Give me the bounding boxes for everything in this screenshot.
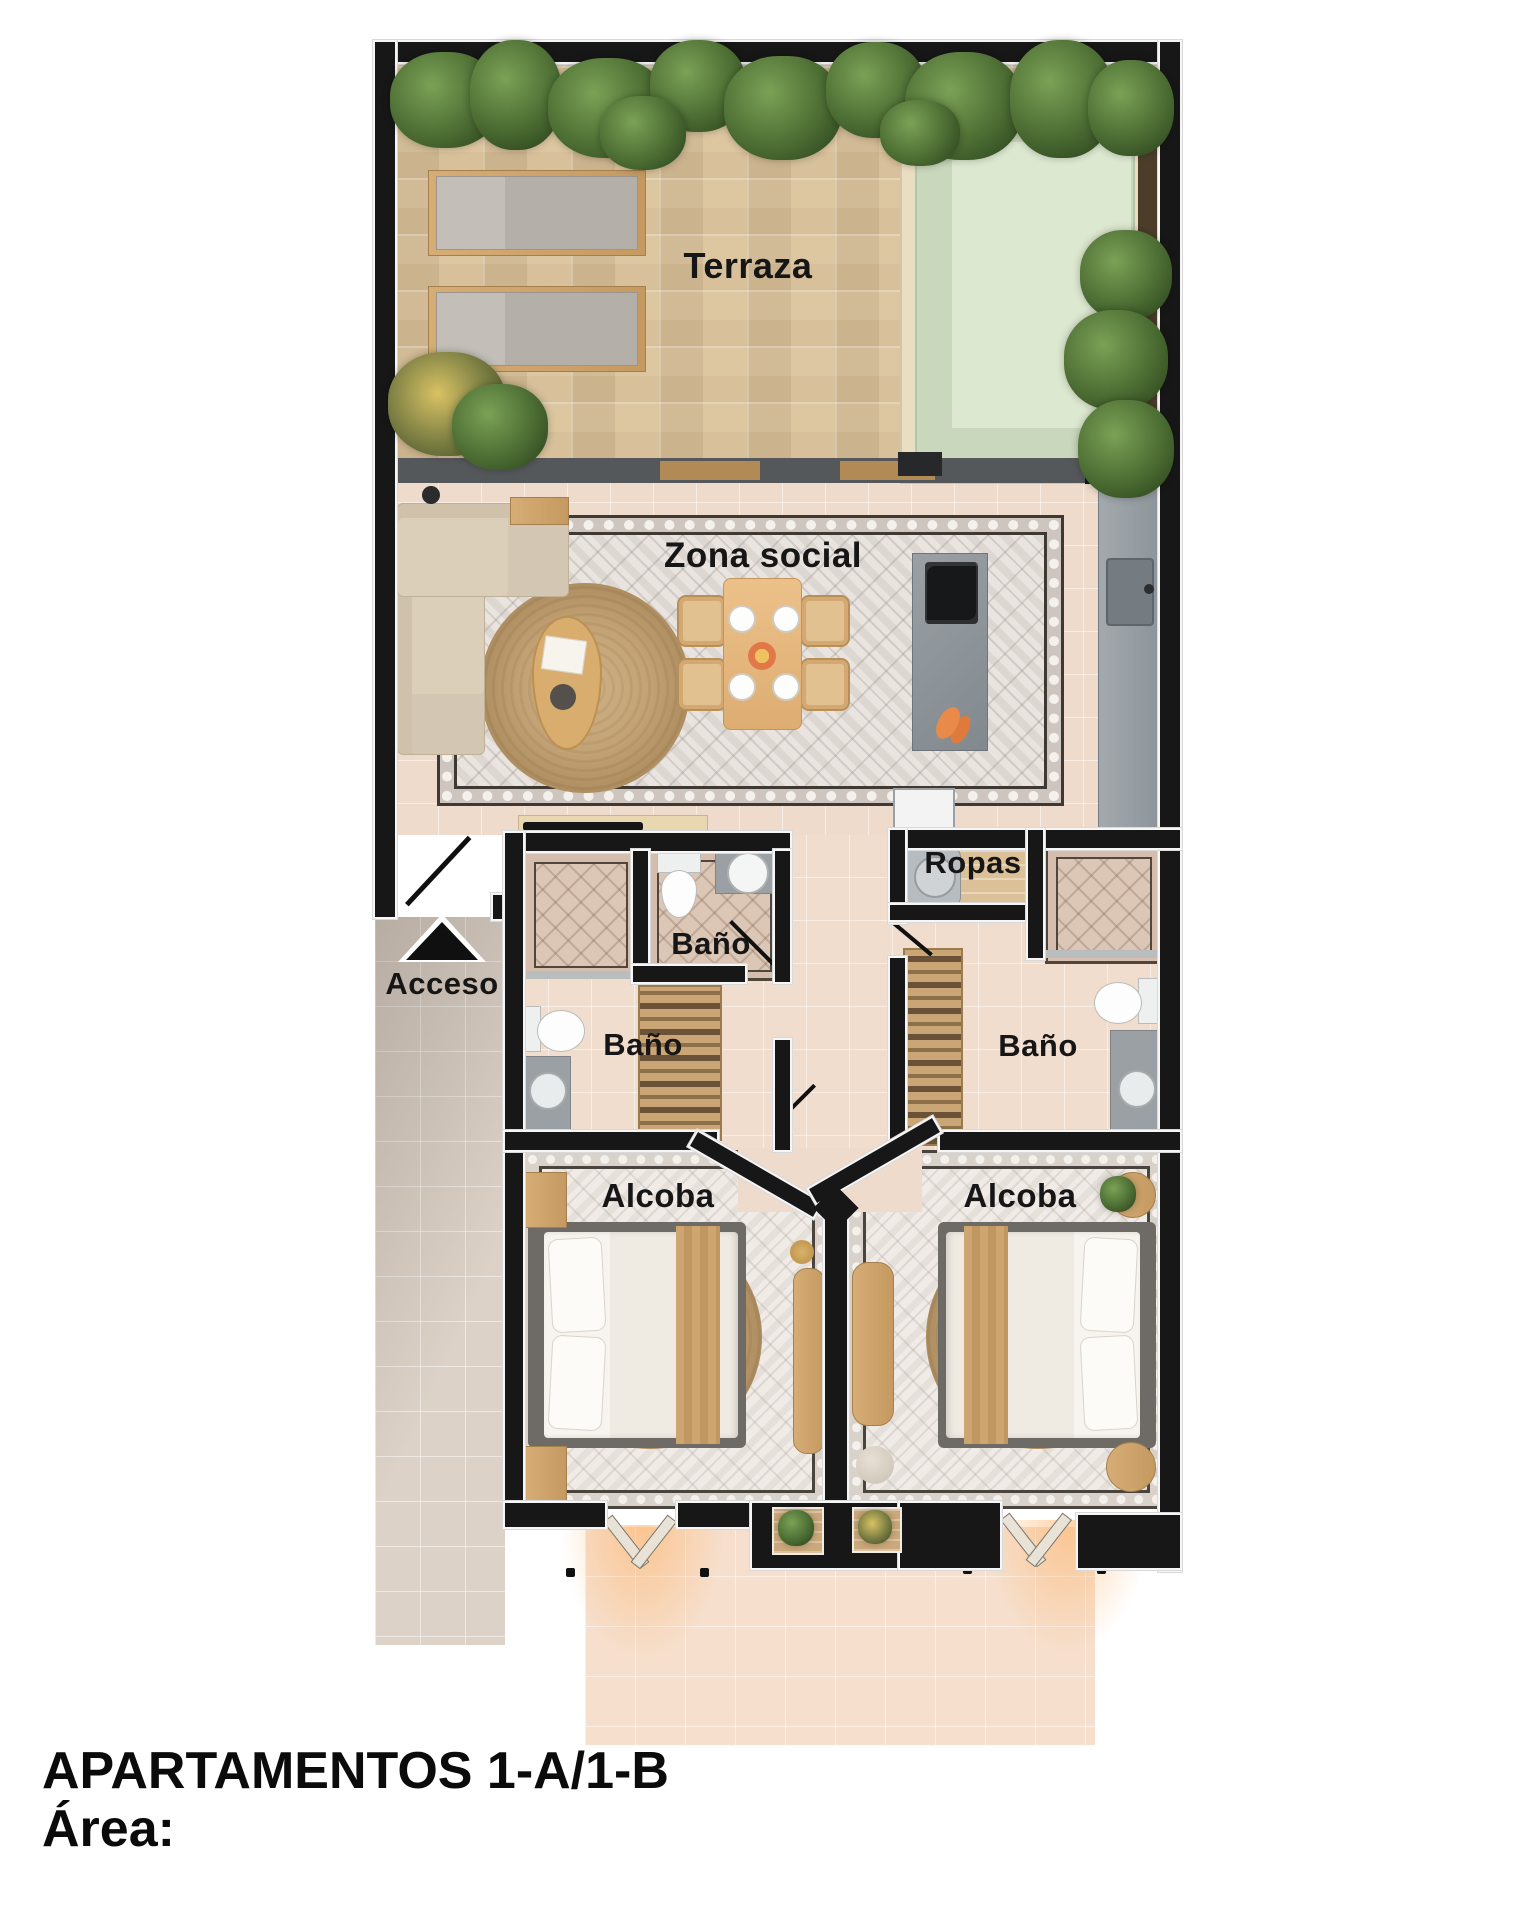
plant-icon	[1080, 230, 1172, 320]
bed-pillow	[1080, 1335, 1139, 1432]
potted-plant-icon	[1100, 1176, 1136, 1212]
wall-alcoba2-top	[940, 1132, 1180, 1150]
room-label-bano-social: Baño	[671, 926, 751, 962]
sink	[1118, 1070, 1156, 1108]
sofa-side-table	[510, 497, 569, 525]
closet-left-bath	[638, 985, 722, 1141]
wall-bottom-d	[900, 1503, 1000, 1568]
room-label-zona-social: Zona social	[664, 536, 862, 576]
sink	[529, 1072, 567, 1110]
bed-throw	[676, 1226, 720, 1444]
powder-sink	[727, 852, 769, 894]
floor-lamp-icon	[422, 486, 440, 504]
plan-title: APARTAMENTOS 1-A/1-B	[42, 1742, 669, 1800]
wall-central-divider	[825, 1205, 847, 1515]
door-handle-icon	[700, 1568, 709, 1577]
floor-plan-page: Terraza Zona social Acceso Baño Baño Bañ…	[0, 0, 1536, 1920]
plate	[728, 605, 756, 633]
shower-glass-right	[1045, 950, 1157, 958]
wall-shower-powder-divider	[633, 851, 648, 981]
wall-hall-left	[775, 1040, 790, 1150]
shower-room-right	[1045, 846, 1163, 964]
appliance	[893, 788, 955, 834]
room-label-bano-2: Baño	[998, 1028, 1078, 1064]
pouf	[856, 1446, 894, 1484]
niche-plant-icon	[858, 1510, 892, 1544]
plant-icon	[724, 56, 842, 160]
wall-powder-bottom	[633, 966, 745, 982]
room-label-terraza: Terraza	[684, 245, 813, 287]
wall-bath-outer-left	[505, 833, 523, 1525]
wall-alcoba1-top	[505, 1132, 717, 1150]
closet-right-bath	[903, 948, 963, 1146]
dining-chair	[800, 658, 850, 711]
plant-icon	[1064, 310, 1168, 410]
console-table	[793, 1268, 825, 1454]
plate	[772, 605, 800, 633]
console-table	[852, 1262, 894, 1426]
toilet-bowl	[537, 1010, 585, 1052]
wall-left	[375, 42, 395, 917]
wall-ropas-right	[1028, 830, 1043, 958]
toilet-bowl	[1094, 982, 1142, 1024]
room-label-alcoba-2: Alcoba	[963, 1177, 1076, 1215]
acceso-arrow-icon	[398, 914, 486, 962]
wall-bottom-a	[505, 1503, 605, 1527]
bed-throw	[964, 1226, 1008, 1444]
cooktop	[925, 562, 978, 624]
fruit-bowl	[748, 642, 776, 670]
bed-pillow	[548, 1237, 607, 1334]
wall-powder-right	[775, 851, 790, 982]
nightstand-round	[1106, 1442, 1156, 1492]
sink-faucet-icon	[1144, 584, 1154, 594]
plan-area-label: Área:	[42, 1800, 669, 1858]
tv-icon	[523, 822, 643, 831]
wall-hall-right	[890, 958, 905, 1150]
nightstand	[525, 1446, 567, 1502]
plant-icon	[1078, 400, 1174, 498]
lounger-cushion-1	[436, 176, 638, 250]
door-handle-icon	[566, 1568, 575, 1577]
wall-bath-top-left	[505, 833, 790, 851]
terrace-door-wood-1	[660, 461, 760, 480]
plate	[772, 673, 800, 701]
room-label-alcoba-1: Alcoba	[601, 1177, 714, 1215]
wall-ropas-bottom	[890, 905, 1042, 920]
door-leaf-line	[405, 836, 471, 907]
coffee-table-bowl	[550, 684, 576, 710]
dining-chair	[677, 658, 727, 711]
shower-glass-left	[523, 971, 633, 979]
plate	[728, 673, 756, 701]
plant-icon	[600, 96, 686, 170]
wall-bottom-e	[1078, 1515, 1180, 1568]
bed-pillow	[548, 1335, 607, 1432]
wall-bottom-b	[678, 1503, 754, 1527]
room-label-acceso: Acceso	[385, 966, 498, 1002]
kitchen-counter	[1098, 483, 1162, 835]
coffee-table-book	[541, 635, 587, 675]
corridor-shadow	[375, 917, 505, 1645]
dining-chair	[677, 595, 727, 647]
room-label-bano-1: Baño	[603, 1027, 683, 1063]
plant-icon	[1088, 60, 1174, 156]
nightstand	[525, 1172, 567, 1228]
plan-title-block: APARTAMENTOS 1-A/1-B Área:	[42, 1742, 669, 1858]
outdoor-grill	[898, 452, 942, 476]
room-label-ropas: Ropas	[924, 845, 1021, 881]
bed-pillow	[1080, 1237, 1139, 1334]
plant-icon	[880, 100, 960, 166]
dining-chair	[800, 595, 850, 647]
plant-icon	[452, 384, 548, 470]
shower-room-left	[523, 851, 639, 979]
decor-branch-icon	[790, 1240, 814, 1264]
niche-plant-icon	[778, 1510, 814, 1546]
